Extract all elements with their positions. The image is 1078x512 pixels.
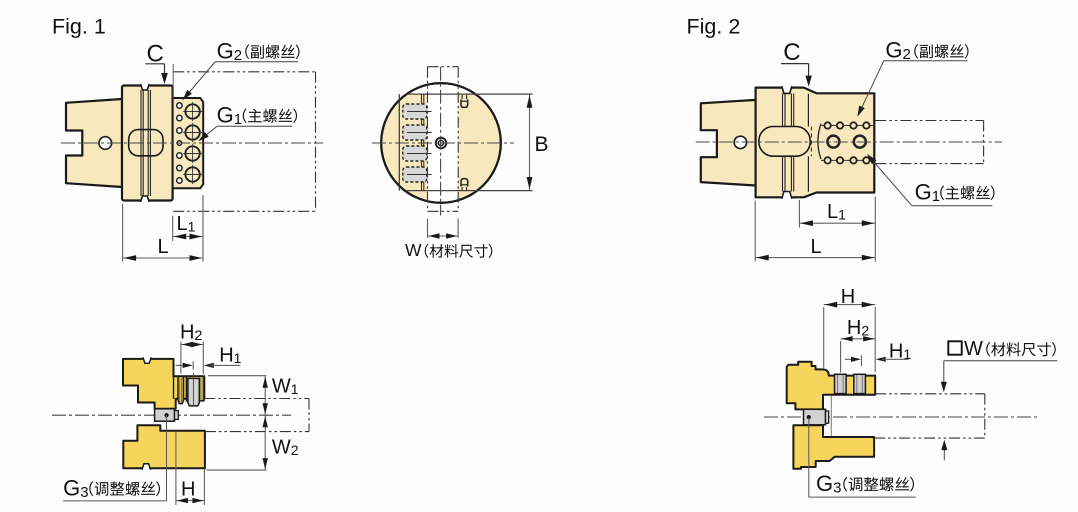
svg-text:L: L	[811, 236, 822, 258]
svg-text:Fig. 1: Fig. 1	[52, 15, 106, 39]
svg-text:H: H	[181, 479, 195, 501]
svg-text:Fig. 2: Fig. 2	[687, 14, 741, 38]
svg-text:W: W	[405, 240, 422, 260]
svg-text:L: L	[158, 236, 169, 258]
svg-text:W: W	[964, 338, 983, 360]
svg-text:B: B	[535, 133, 549, 156]
svg-text:C: C	[783, 39, 800, 66]
